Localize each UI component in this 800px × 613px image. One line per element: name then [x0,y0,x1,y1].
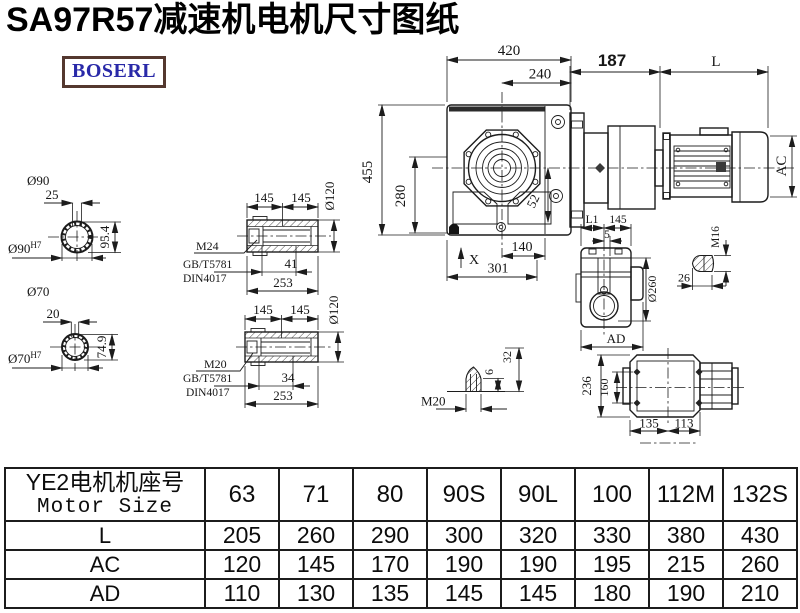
motor-size-table: YE2电机机座号 Motor Size 63 71 80 90S 90L 100… [4,467,798,609]
table-row-ad: AD 110 130 135 145 145 180 190 210 [5,579,797,608]
cell: 290 [353,521,427,550]
motor-size-header-cn: YE2电机机座号 [6,469,204,495]
col-header: 63 [205,468,279,521]
row-label: AD [5,579,205,608]
front-oil-mark-label: X [469,253,479,268]
cell: 190 [501,550,575,579]
motor-side-view: 187 L AC [570,51,797,227]
hollow24-seg2-dim: 145 [291,190,311,205]
front-height-inner-dim: 280 [393,185,409,208]
cell: 300 [427,521,501,550]
cell: 260 [279,521,353,550]
motor-size-header: YE2电机机座号 Motor Size [5,468,205,521]
shaft70-keyw-dim: 20 [47,306,60,321]
cell: 205 [205,521,279,550]
shaft90-keyh-dim: 95.4 [97,225,112,248]
shaft70-dia-label: Ø70 [27,284,49,299]
col-header: 132S [723,468,797,521]
front-height-dim: 455 [360,161,376,184]
side-ad-dim: AD [607,331,626,346]
cell: 190 [427,550,501,579]
hollow20-std2-label: DIN4017 [186,387,230,399]
drawing-sheet: SA97R57减速机电机尺寸图纸 BOSERL Ø90 25 [0,0,800,613]
gearbox-side-view: L1 145 5 Ø260 AD [576,214,659,351]
gearbox-top-view: 236 160 135 113 [579,348,746,443]
col-header: 90S [427,468,501,521]
motor-adapter-len-dim: 187 [598,51,626,70]
top-right-dim: 113 [674,416,693,431]
motor-size-header-en: Motor Size [6,495,204,520]
hollow20-seg2-dim: 145 [290,302,310,317]
cell: 120 [205,550,279,579]
col-header: 71 [279,468,353,521]
hollow20-length-dim: 253 [273,388,293,403]
motor-len-dim: L [711,54,720,70]
cell: 210 [723,579,797,608]
side-len-dim: 145 [609,214,627,226]
m20-thread-label: M20 [421,394,446,409]
row-label: AC [5,550,205,579]
front-offset-dim: 52 [523,192,542,210]
side-step-dim: 5 [604,229,610,241]
motor-dia-dim: AC [774,156,790,177]
shaft-center-mark [595,163,605,173]
cell: 330 [575,521,649,550]
shaft90-keyw-dim: 25 [46,187,59,202]
oil-plug [449,224,459,235]
gearbox-front-view: 420 240 455 280 52 140 301 X [360,43,796,281]
hollow-shaft-m20-view: 145 145 Ø120 M20 GB/T5781 DIN4017 34 253 [183,296,344,408]
front-width-dim: 420 [498,43,521,59]
hollow-shaft-m24-view: 145 145 Ø120 M24 GB/T5781 DIN4017 41 253 [183,182,340,295]
hollow20-thread-label: M20 [204,357,227,371]
hollow24-std2-label: DIN4017 [183,273,227,285]
shaft-section-70-view: Ø70 20 74.9 Ø70H7 [8,284,118,371]
cell: 380 [649,521,723,550]
hollow24-thread-label: M24 [196,239,219,253]
cell: 195 [575,550,649,579]
col-header: 80 [353,468,427,521]
hollow24-std1-label: GB/T5781 [183,259,232,271]
col-header: 90L [501,468,575,521]
top-bolt-span-dim: 160 [597,379,611,397]
cell: 145 [427,579,501,608]
cell: 320 [501,521,575,550]
cell: 110 [205,579,279,608]
col-header: 100 [575,468,649,521]
cell: 430 [723,521,797,550]
cell: 135 [353,579,427,608]
shaft70-keyh-dim: 74.9 [94,336,109,359]
col-header: 112M [649,468,723,521]
hollow20-depth-dim: 34 [282,370,296,385]
m20-step-dim: 6 [482,369,496,375]
hollow24-dia-dim: Ø120 [322,182,337,211]
m16-thread-label: M16 [710,226,722,248]
table-row-l: L 205 260 290 300 320 330 380 430 [5,521,797,550]
front-total-base-dim: 301 [488,262,509,277]
shaft70-bore-dim: Ø70H7 [8,350,42,366]
top-height-dim: 236 [579,376,594,396]
stud-m20-detail: M20 6 32 [421,348,524,412]
hollow24-length-dim: 253 [273,275,293,290]
hollow24-seg1-dim: 145 [254,190,274,205]
stud-m16-detail: M16 26 [677,226,731,290]
shaft90-bore-dim: Ø90H7 [8,240,42,256]
top-left-dim: 135 [639,416,659,431]
cell: 145 [279,550,353,579]
cell: 190 [649,579,723,608]
hollow20-seg1-dim: 145 [253,302,273,317]
front-width-inner-dim: 240 [529,67,552,83]
row-label: L [5,521,205,550]
cell: 260 [723,550,797,579]
side-l1-dim: L1 [586,214,599,226]
cell: 130 [279,579,353,608]
side-dia-dim: Ø260 [645,276,659,303]
shaft-section-90-view: Ø90 25 95.4 Ø90H7 [8,173,121,263]
hollow20-dia-dim: Ø120 [326,296,341,325]
table-row-ac: AC 120 145 170 190 190 195 215 260 [5,550,797,579]
m16-len-dim: 26 [678,271,690,285]
cell: 145 [501,579,575,608]
cell: 170 [353,550,427,579]
cell: 180 [575,579,649,608]
front-base-dim: 140 [512,240,533,255]
hollow20-std1-label: GB/T5781 [183,373,232,385]
m20-height-dim: 32 [500,351,514,363]
hollow24-depth-dim: 41 [285,256,298,271]
technical-drawing: Ø90 25 95.4 Ø90H7 Ø70 [0,0,800,462]
cell: 215 [649,550,723,579]
shaft90-dia-label: Ø90 [27,173,49,188]
